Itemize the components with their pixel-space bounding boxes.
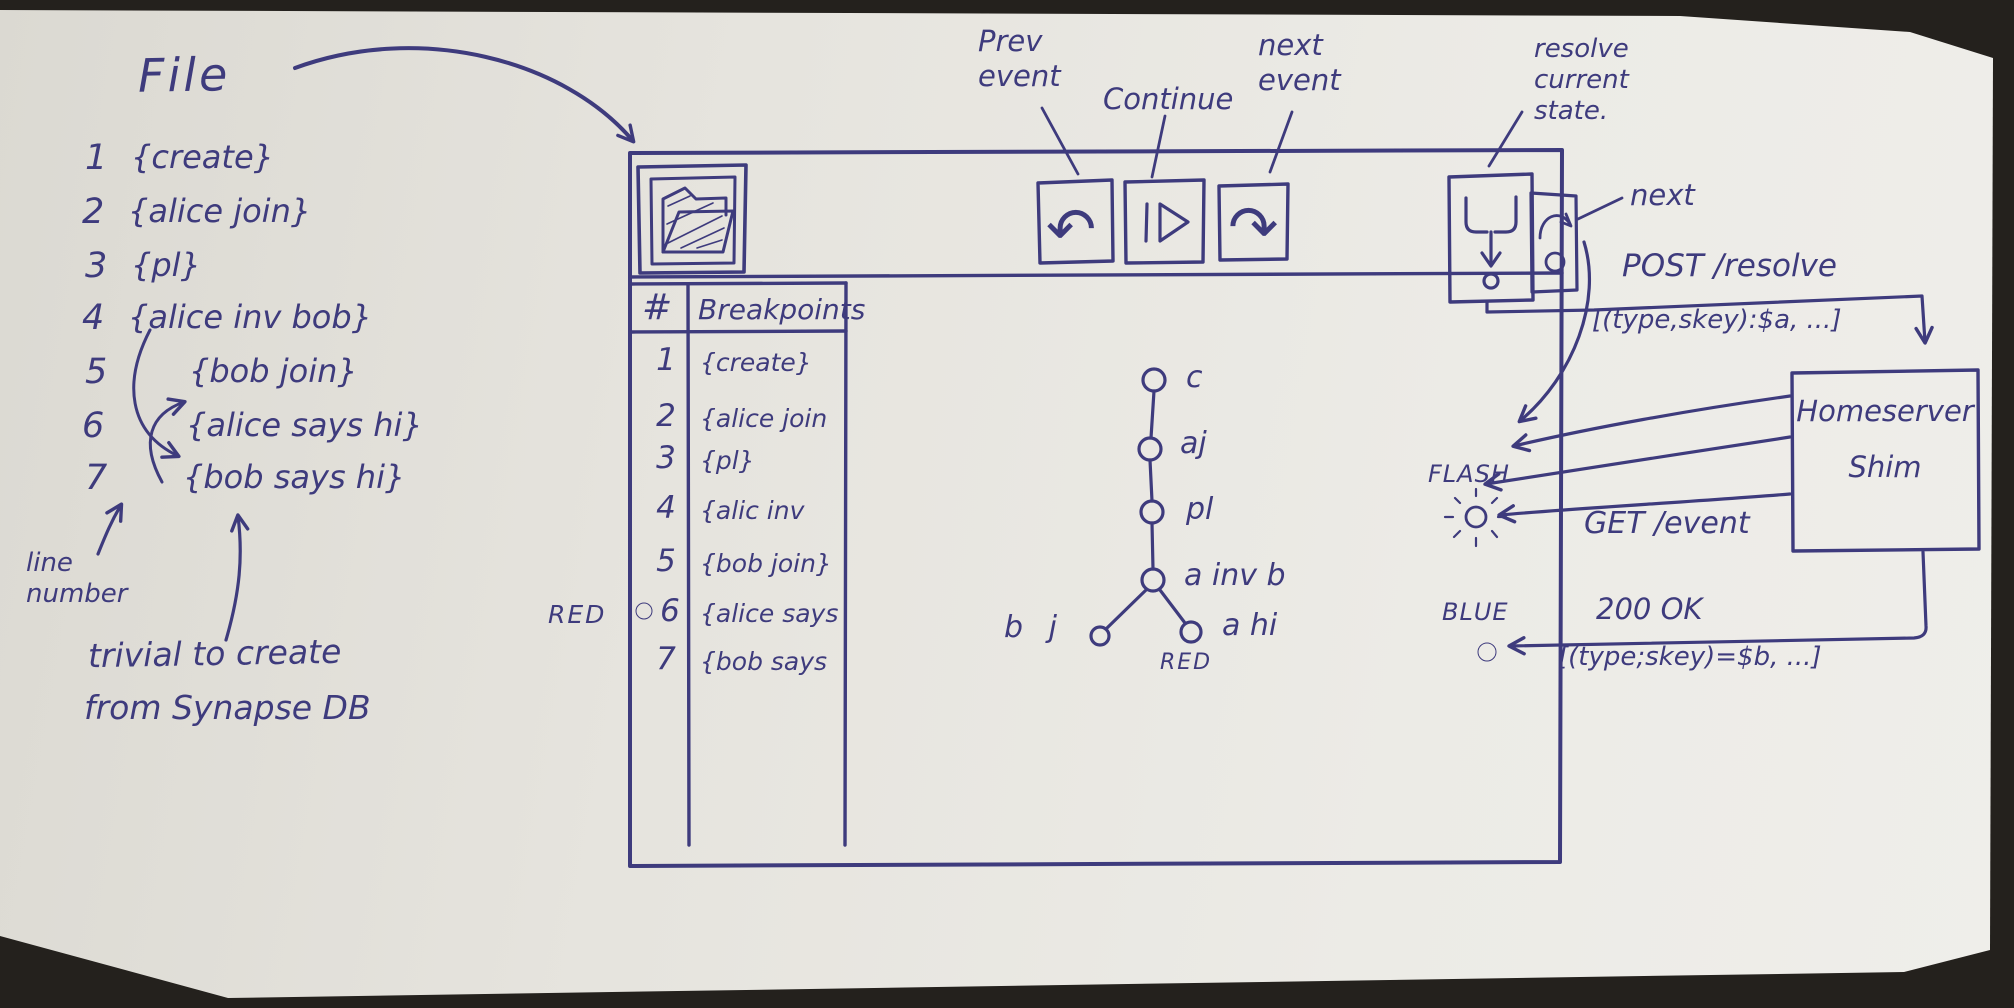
dag-node-pl[interactable] xyxy=(1141,501,1163,523)
trivial-note-line2: from Synapse DB xyxy=(84,688,371,728)
blue-label: BLUE xyxy=(1442,598,1509,627)
shim-event-arrows xyxy=(1486,396,1790,515)
prev-event-label: Prev event xyxy=(978,24,1108,94)
breakpoint-dot[interactable] xyxy=(636,603,652,619)
file-line-text: {alice inv bob} xyxy=(128,298,372,338)
breakpoint-row-text[interactable]: {pl} xyxy=(700,446,755,476)
folder-open-icon xyxy=(663,188,733,252)
file-line: 7 {bob says hi} xyxy=(85,458,405,498)
step-next-icon xyxy=(1540,214,1571,271)
next-event-label: next event xyxy=(1258,28,1368,98)
file-to-window-arrow xyxy=(295,48,633,141)
post-resolve-title: POST /resolve xyxy=(1622,248,1837,285)
prev-event-button[interactable] xyxy=(1038,180,1113,263)
file-line-number: 1 xyxy=(85,138,131,178)
file-line-number: 3 xyxy=(85,246,131,286)
breakpoint-row-num[interactable]: 5 xyxy=(648,543,684,580)
dag-node-aj[interactable] xyxy=(1139,438,1161,460)
trivial-note-line1: trivial to create xyxy=(88,632,342,676)
ok-title: 200 OK xyxy=(1596,592,1702,627)
dag-label-b-j: b j xyxy=(1004,610,1065,646)
get-event-label: GET /event xyxy=(1584,506,1750,542)
file-line-number: 2 xyxy=(82,192,128,232)
play-icon xyxy=(1146,204,1188,241)
breakpoint-row-text[interactable]: {create} xyxy=(700,348,812,378)
breakpoint-row-text[interactable]: {alic inv xyxy=(700,496,804,526)
breakpoint-row-num[interactable]: 1 xyxy=(648,342,684,379)
file-heading: File xyxy=(138,47,231,104)
dag-label-aj: aj xyxy=(1180,426,1207,462)
breakpoint-row-text[interactable]: {alice says xyxy=(700,599,838,629)
file-line: 2 {alice join} xyxy=(82,192,311,232)
breakpoint-row-text[interactable]: {bob join} xyxy=(700,549,832,579)
breakpoint-row-text[interactable]: {alice join xyxy=(700,404,827,434)
dag-node-b-j[interactable] xyxy=(1091,627,1109,645)
dag-node-a-inv-b[interactable] xyxy=(1142,569,1164,591)
trivial-note-arrow xyxy=(226,516,240,640)
dag-label-a-inv-b: a inv b xyxy=(1184,558,1286,594)
flash-label: FLASH xyxy=(1428,460,1510,489)
breakpoint-row-num[interactable]: 3 xyxy=(648,440,684,477)
event-dag xyxy=(1091,369,1201,645)
file-line: 4 {alice inv bob} xyxy=(82,298,372,338)
file-line-number: 4 xyxy=(82,298,128,338)
file-line: 1 {create} xyxy=(85,138,274,178)
breakpoint-row-num[interactable]: 4 xyxy=(648,490,684,527)
file-line-text: {create} xyxy=(131,138,274,178)
next-event-button[interactable] xyxy=(1219,184,1288,260)
file-line-text: {bob join} xyxy=(131,352,358,392)
open-file-button[interactable] xyxy=(638,165,746,273)
file-line-text: {pl} xyxy=(131,246,201,286)
sketch-strokes xyxy=(0,0,2014,1008)
blue-dot xyxy=(1478,643,1496,661)
file-line: 5 {bob join} xyxy=(85,352,358,392)
dag-label-a-hi: a hi xyxy=(1222,608,1277,644)
breakpoints-header-num: # xyxy=(642,286,672,329)
file-line: 3 {pl} xyxy=(85,246,201,286)
breakpoint-row-num[interactable]: 2 xyxy=(648,398,684,435)
file-line-text: {bob says hi} xyxy=(131,458,405,498)
file-line-number: 7 xyxy=(85,458,131,498)
resolve-state-button[interactable] xyxy=(1449,174,1533,302)
continue-label: Continue xyxy=(1103,82,1233,117)
breakpoint-row-num[interactable]: 6 xyxy=(652,593,688,630)
shim-title-line1: Homeserver xyxy=(1792,394,1978,429)
breakpoints-header-title: Breakpoints xyxy=(698,293,865,327)
breakpoint-row-num[interactable]: 7 xyxy=(648,641,684,678)
file-line-text: {alice join} xyxy=(128,192,311,232)
dag-node-c[interactable] xyxy=(1143,369,1165,391)
line-number-arrow xyxy=(98,505,121,554)
red-breakpoint-label: RED xyxy=(548,600,606,630)
line-number-note: line number xyxy=(26,548,156,610)
breakpoint-row-text[interactable]: {bob says xyxy=(700,647,827,677)
ok-response-arrow xyxy=(1510,552,1926,646)
flash-burst-icon xyxy=(1445,489,1506,546)
shim-title-line2: Shim xyxy=(1792,450,1978,485)
next-state-button[interactable] xyxy=(1531,193,1577,292)
continue-button[interactable] xyxy=(1125,180,1204,263)
file-line-text: {alice says hi} xyxy=(128,406,423,446)
dag-label-pl: pl xyxy=(1186,492,1213,528)
post-resolve-payload: [(type,skey):$a, ...] xyxy=(1592,305,1841,336)
dag-label-c: c xyxy=(1186,360,1203,396)
file-line-number: 6 xyxy=(82,406,128,446)
file-line-number: 5 xyxy=(85,352,131,392)
resolve-state-label: resolve current state. xyxy=(1534,34,1652,128)
ok-payload: [(type;skey)=$b, ...] xyxy=(1558,642,1822,673)
next-state-label: next xyxy=(1630,178,1695,213)
dag-node-a-hi[interactable] xyxy=(1181,622,1201,642)
sketch-page: ↶ ↷ File 1 {create} 2 {alice join} 3 {pl… xyxy=(0,0,2014,1008)
dag-red-label: RED xyxy=(1160,650,1212,676)
file-line: 6 {alice says hi} xyxy=(82,406,423,446)
